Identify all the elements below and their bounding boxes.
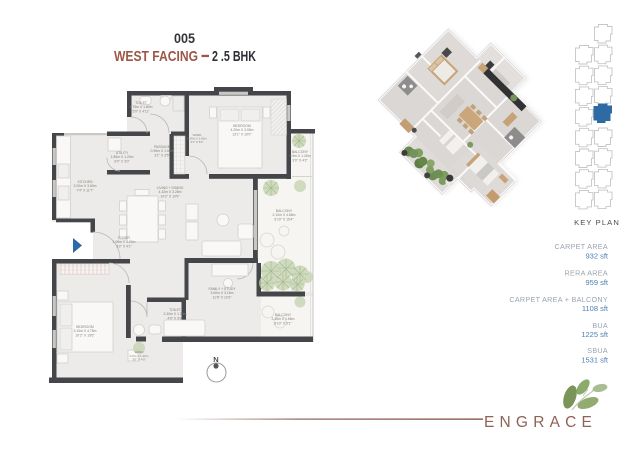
svg-text:11'8" X 10'3": 11'8" X 10'3" (213, 295, 233, 299)
svg-text:7'4" X 11'7": 7'4" X 11'7" (76, 188, 94, 192)
svg-text:CARPET AREA: CARPET AREA (555, 242, 609, 251)
svg-text:10'2" X 15'6": 10'2" X 15'6" (75, 333, 95, 337)
svg-text:13'1" X 10'0": 13'1" X 10'0" (232, 132, 252, 136)
svg-text:959 sft: 959 sft (585, 278, 608, 287)
svg-text:2 .5 BHK: 2 .5 BHK (212, 48, 256, 65)
svg-text:6'10" X 15'4": 6'10" X 15'4" (274, 217, 294, 221)
svg-text:SBUA: SBUA (587, 346, 608, 355)
svg-text:1531 sft: 1531 sft (581, 356, 609, 365)
svg-text:3'2" X 4'1": 3'2" X 4'1" (116, 244, 132, 248)
svg-text:6'10" X 5'1": 6'10" X 5'1" (274, 321, 292, 325)
svg-text:932 sft: 932 sft (585, 252, 608, 261)
svg-text:4'9" X 3'9": 4'9" X 3'9" (167, 316, 183, 320)
svg-text:3'0" X 4'0": 3'0" X 4'0" (132, 358, 146, 362)
svg-text:KEY PLAN: KEY PLAN (574, 218, 620, 227)
svg-text:5'9" X 4'11": 5'9" X 4'11" (132, 109, 150, 113)
svg-text:3'0" X 4'2": 3'0" X 4'2" (292, 158, 308, 162)
svg-text:005: 005 (174, 30, 195, 46)
svg-text:2'1" X 5'2": 2'1" X 5'2" (190, 140, 203, 144)
svg-text:CARPET AREA + BALCONY: CARPET AREA + BALCONY (509, 295, 608, 304)
svg-text:ENGRACE: ENGRACE (484, 414, 597, 431)
svg-text:3'1" X 3'5": 3'1" X 3'5" (154, 153, 170, 157)
svg-text:1108 sft: 1108 sft (582, 304, 609, 313)
svg-text:N: N (213, 355, 218, 364)
svg-text:WEST FACING: WEST FACING (114, 48, 198, 65)
svg-text:6'0" X 3'0": 6'0" X 3'0" (114, 159, 130, 163)
svg-text:1225 sft: 1225 sft (581, 330, 609, 339)
svg-text:RERA AREA: RERA AREA (565, 269, 608, 278)
svg-text:14'2" X 10'9": 14'2" X 10'9" (160, 194, 180, 198)
svg-text:BUA: BUA (592, 321, 608, 330)
